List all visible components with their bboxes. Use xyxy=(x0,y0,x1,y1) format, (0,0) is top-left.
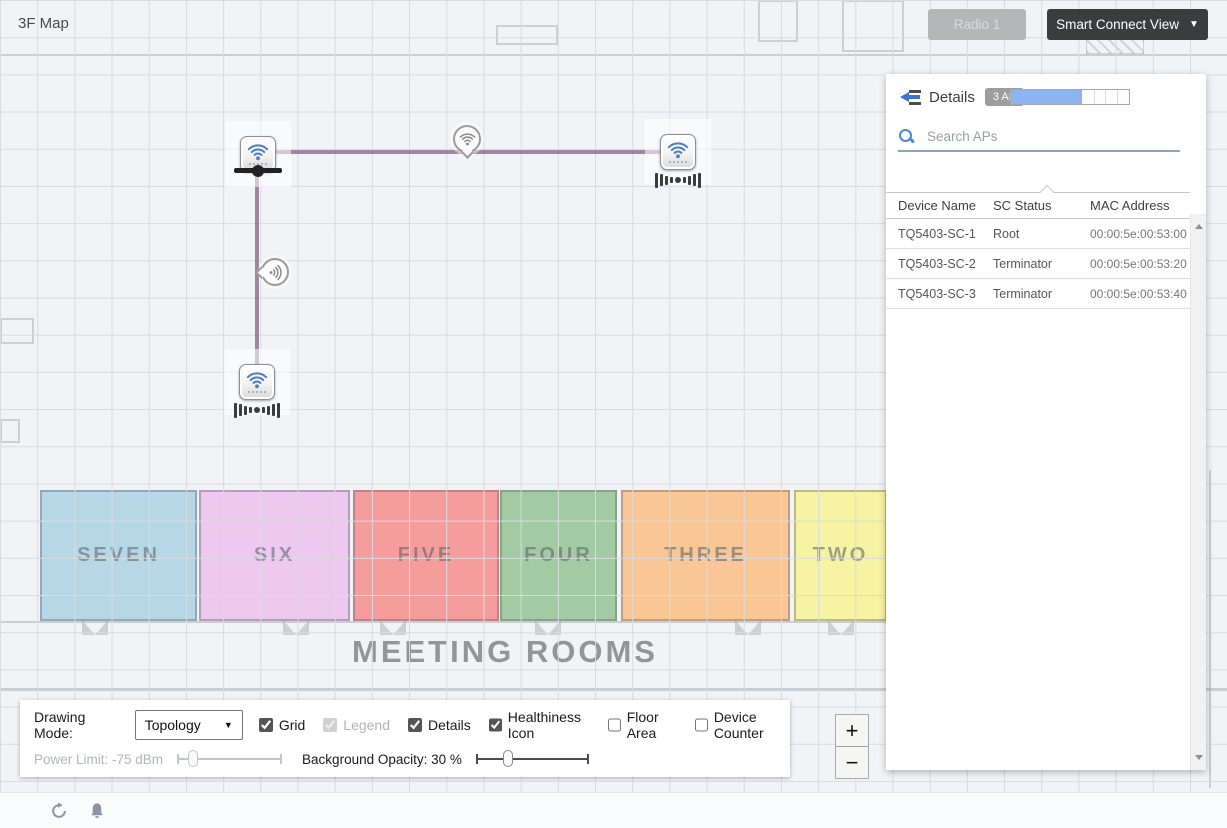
panel-scrollbar[interactable] xyxy=(1190,214,1206,770)
zoom-controls: + − xyxy=(835,714,869,779)
capacity-bar xyxy=(1010,89,1130,105)
map-control-bar: Drawing Mode: Topology ▼ GridLegendDetai… xyxy=(20,700,790,777)
terminator-ap-node[interactable] xyxy=(239,364,275,400)
sc-status-cell: Root xyxy=(993,227,1090,241)
checkbox-label: Healthiness Icon xyxy=(508,709,590,741)
background-opacity-label: Background Opacity: 30 % xyxy=(302,752,462,767)
drawing-mode-value: Topology xyxy=(145,717,201,733)
table-header: Device Name SC Status MAC Address xyxy=(886,192,1190,219)
capacity-bar-divider xyxy=(1094,90,1095,104)
checkbox-row: GridLegendDetailsHealthiness IconFloor A… xyxy=(259,709,790,741)
checkbox-label: Floor Area xyxy=(627,709,677,741)
checkbox-label: Grid xyxy=(279,717,305,733)
checkbox-grid[interactable]: Grid xyxy=(259,717,305,733)
device-name-cell: TQ5403-SC-3 xyxy=(886,287,993,301)
capacity-bar-fill xyxy=(1011,90,1082,104)
scroll-down-icon[interactable] xyxy=(1195,755,1203,760)
power-limit-label: Power Limit: -75 dBm xyxy=(34,752,163,767)
search-icon xyxy=(898,128,915,145)
mac-address-cell: 00:00:5e:00:53:40 xyxy=(1090,287,1190,301)
checkbox-label: Legend xyxy=(343,717,390,733)
table-row[interactable]: TQ5403-SC-2Terminator00:00:5e:00:53:20 xyxy=(886,249,1190,279)
table-row[interactable]: TQ5403-SC-1Root00:00:5e:00:53:00 xyxy=(886,219,1190,249)
device-name-cell: TQ5403-SC-2 xyxy=(886,257,993,271)
checkbox-label: Details xyxy=(428,717,471,733)
checkbox-input[interactable] xyxy=(608,718,621,732)
checkbox-input[interactable] xyxy=(408,718,422,732)
scroll-up-icon[interactable] xyxy=(1195,224,1203,229)
table-row[interactable]: TQ5403-SC-3Terminator00:00:5e:00:53:40 xyxy=(886,279,1190,309)
checkbox-label: Device Counter xyxy=(714,709,790,741)
column-header-mac-address[interactable]: MAC Address xyxy=(1090,198,1190,213)
wifi-signal-icon xyxy=(269,264,282,281)
details-panel-header: Details 3 AP xyxy=(900,86,1024,108)
drawing-mode-select[interactable]: Topology ▼ xyxy=(135,710,243,740)
smart-connect-map-view: SEVENSIXFIVEFOURTHREETWO MEETING ROOMS 3… xyxy=(0,0,1227,828)
mac-address-cell: 00:00:5e:00:53:00 xyxy=(1090,227,1190,241)
checkbox-input[interactable] xyxy=(489,718,502,732)
background-opacity-slider-thumb[interactable] xyxy=(503,750,513,767)
ap-table: Device Name SC Status MAC Address TQ5403… xyxy=(886,192,1190,309)
search-input[interactable] xyxy=(925,128,1155,145)
radio-1-button[interactable]: Radio 1 xyxy=(928,9,1026,40)
notifications-bell-icon[interactable] xyxy=(88,802,106,820)
table-body: TQ5403-SC-1Root00:00:5e:00:53:00TQ5403-S… xyxy=(886,219,1190,309)
checkbox-input[interactable] xyxy=(323,718,337,732)
zoom-in-button[interactable]: + xyxy=(836,715,868,746)
capacity-bar-divider xyxy=(1105,90,1106,104)
background-opacity-slider[interactable] xyxy=(476,750,589,768)
mac-address-cell: 00:00:5e:00:53:20 xyxy=(1090,257,1190,271)
terminator-signal-marker xyxy=(650,172,706,188)
column-header-device-name[interactable]: Device Name xyxy=(886,198,993,213)
sc-status-cell: Terminator xyxy=(993,257,1090,271)
wifi-signal-icon xyxy=(459,133,476,146)
page-title: 3F Map xyxy=(18,15,69,32)
power-limit-slider-thumb[interactable] xyxy=(188,750,198,767)
radio-1-button-label: Radio 1 xyxy=(954,17,1001,32)
checkbox-details[interactable]: Details xyxy=(408,717,471,733)
chevron-down-icon: ▼ xyxy=(224,720,233,730)
status-bar xyxy=(0,792,1227,828)
control-row-sliders: Power Limit: -75 dBm Background Opacity:… xyxy=(34,748,589,770)
sc-status-cell: Terminator xyxy=(993,287,1090,301)
details-panel: Details 3 AP Device Name SC Status MAC A… xyxy=(886,74,1206,770)
checkbox-input[interactable] xyxy=(695,718,708,732)
zoom-out-button[interactable]: − xyxy=(836,747,868,778)
control-row-options: Drawing Mode: Topology ▼ GridLegendDetai… xyxy=(34,709,790,741)
chevron-down-icon: ▼ xyxy=(1189,19,1199,30)
terminator-signal-marker xyxy=(229,402,285,418)
checkbox-device-counter[interactable]: Device Counter xyxy=(695,709,790,741)
balloon-tail xyxy=(461,146,474,159)
power-limit-slider[interactable] xyxy=(177,750,282,768)
checkbox-legend[interactable]: Legend xyxy=(323,717,390,733)
terminator-ap-node[interactable] xyxy=(660,134,696,170)
checkbox-healthiness-icon[interactable]: Healthiness Icon xyxy=(489,709,590,741)
view-mode-label: Smart Connect View xyxy=(1056,17,1179,32)
capacity-bar-divider xyxy=(1117,90,1118,104)
column-header-sc-status[interactable]: SC Status xyxy=(993,198,1090,213)
device-name-cell: TQ5403-SC-1 xyxy=(886,227,993,241)
collapse-details-icon[interactable] xyxy=(900,90,921,105)
checkbox-input[interactable] xyxy=(259,718,273,732)
refresh-icon[interactable] xyxy=(50,802,68,820)
details-title: Details xyxy=(929,89,975,106)
link-health-icon[interactable] xyxy=(261,258,289,286)
search-row xyxy=(898,122,1180,152)
checkbox-floor-area[interactable]: Floor Area xyxy=(608,709,677,741)
link-health-icon[interactable] xyxy=(453,125,481,153)
drawing-mode-label: Drawing Mode: xyxy=(34,709,119,741)
root-wired-marker-dot xyxy=(252,165,264,177)
view-mode-dropdown-button[interactable]: Smart Connect View ▼ xyxy=(1047,9,1208,40)
